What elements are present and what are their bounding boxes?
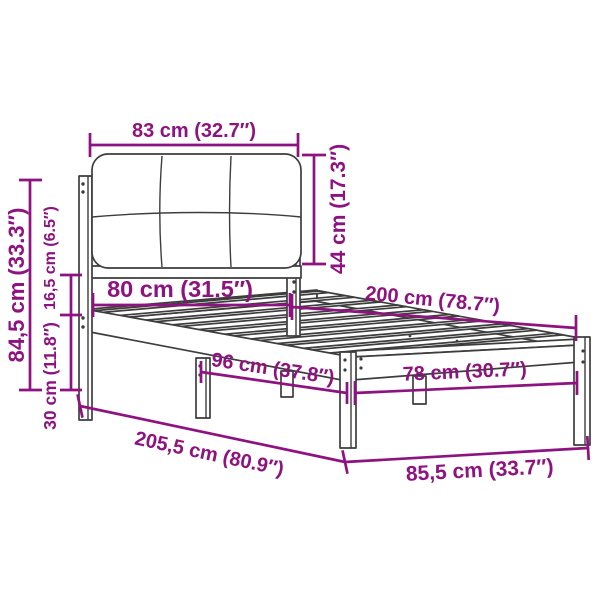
dim-overall-height-label: 84,5 cm (33.3″) [4, 208, 29, 363]
front-middle-leg [196, 358, 210, 418]
headboard-left-post [79, 176, 92, 420]
dim-rail-to-headboard-gap-label: 16,5 cm (6.5″) [42, 206, 59, 310]
dim-headboard-width-label: 83 cm (32.7″) [132, 120, 256, 142]
bed-dimension-diagram: 83 cm (32.7″) 44 cm (17.3″) 80 cm (31.5″… [0, 0, 600, 600]
dim-platform-height-label: 30 cm (11.8″) [40, 322, 60, 430]
headboard-cushion [92, 154, 301, 268]
dim-foot-inner-width-label: 78 cm (30.7″) [402, 358, 527, 385]
dim-headboard-inner-width-label: 80 cm (31.5″) [107, 276, 253, 302]
dim-headboard-height-arrow [302, 155, 326, 264]
dim-overall-width-label: 85,5 cm (33.7″) [405, 455, 554, 486]
dim-headboard-height-label: 44 cm (17.3″) [327, 144, 350, 274]
diagram-canvas: 83 cm (32.7″) 44 cm (17.3″) 80 cm (31.5″… [0, 0, 600, 600]
dim-overall-length-label: 205,5 cm (80.9″) [133, 428, 286, 481]
